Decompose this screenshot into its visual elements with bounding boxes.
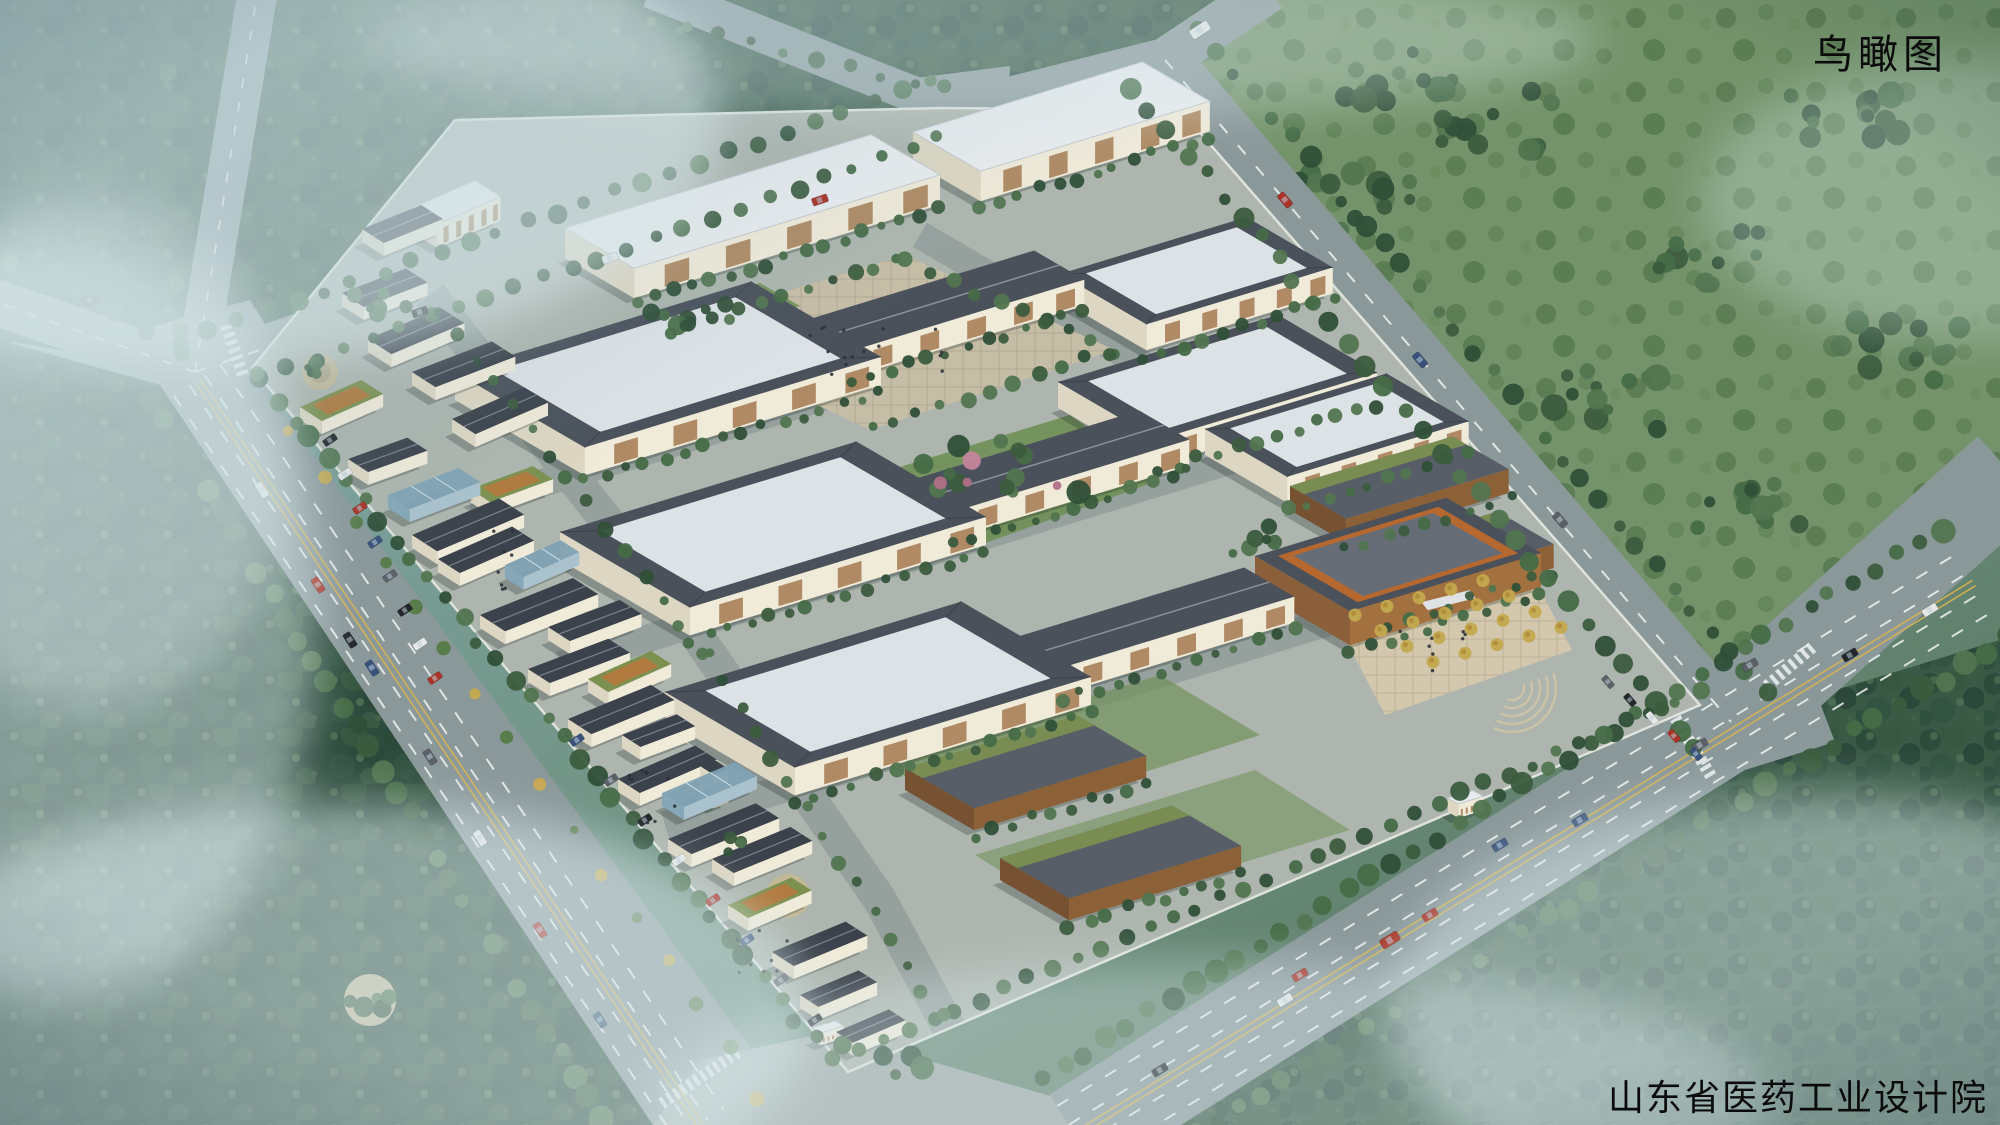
industrial-park-aerial-scene: [0, 0, 2000, 1125]
vignette: [0, 0, 2000, 1125]
aerial-rendering-viewport: 鸟瞰图 山东省医药工业设计院: [0, 0, 2000, 1125]
design-institute-credit-label: 山东省医药工业设计院: [1608, 1069, 1988, 1121]
mist-haze-layer: [0, 0, 2000, 1125]
drawing-title-label: 鸟瞰图: [1813, 22, 1948, 80]
